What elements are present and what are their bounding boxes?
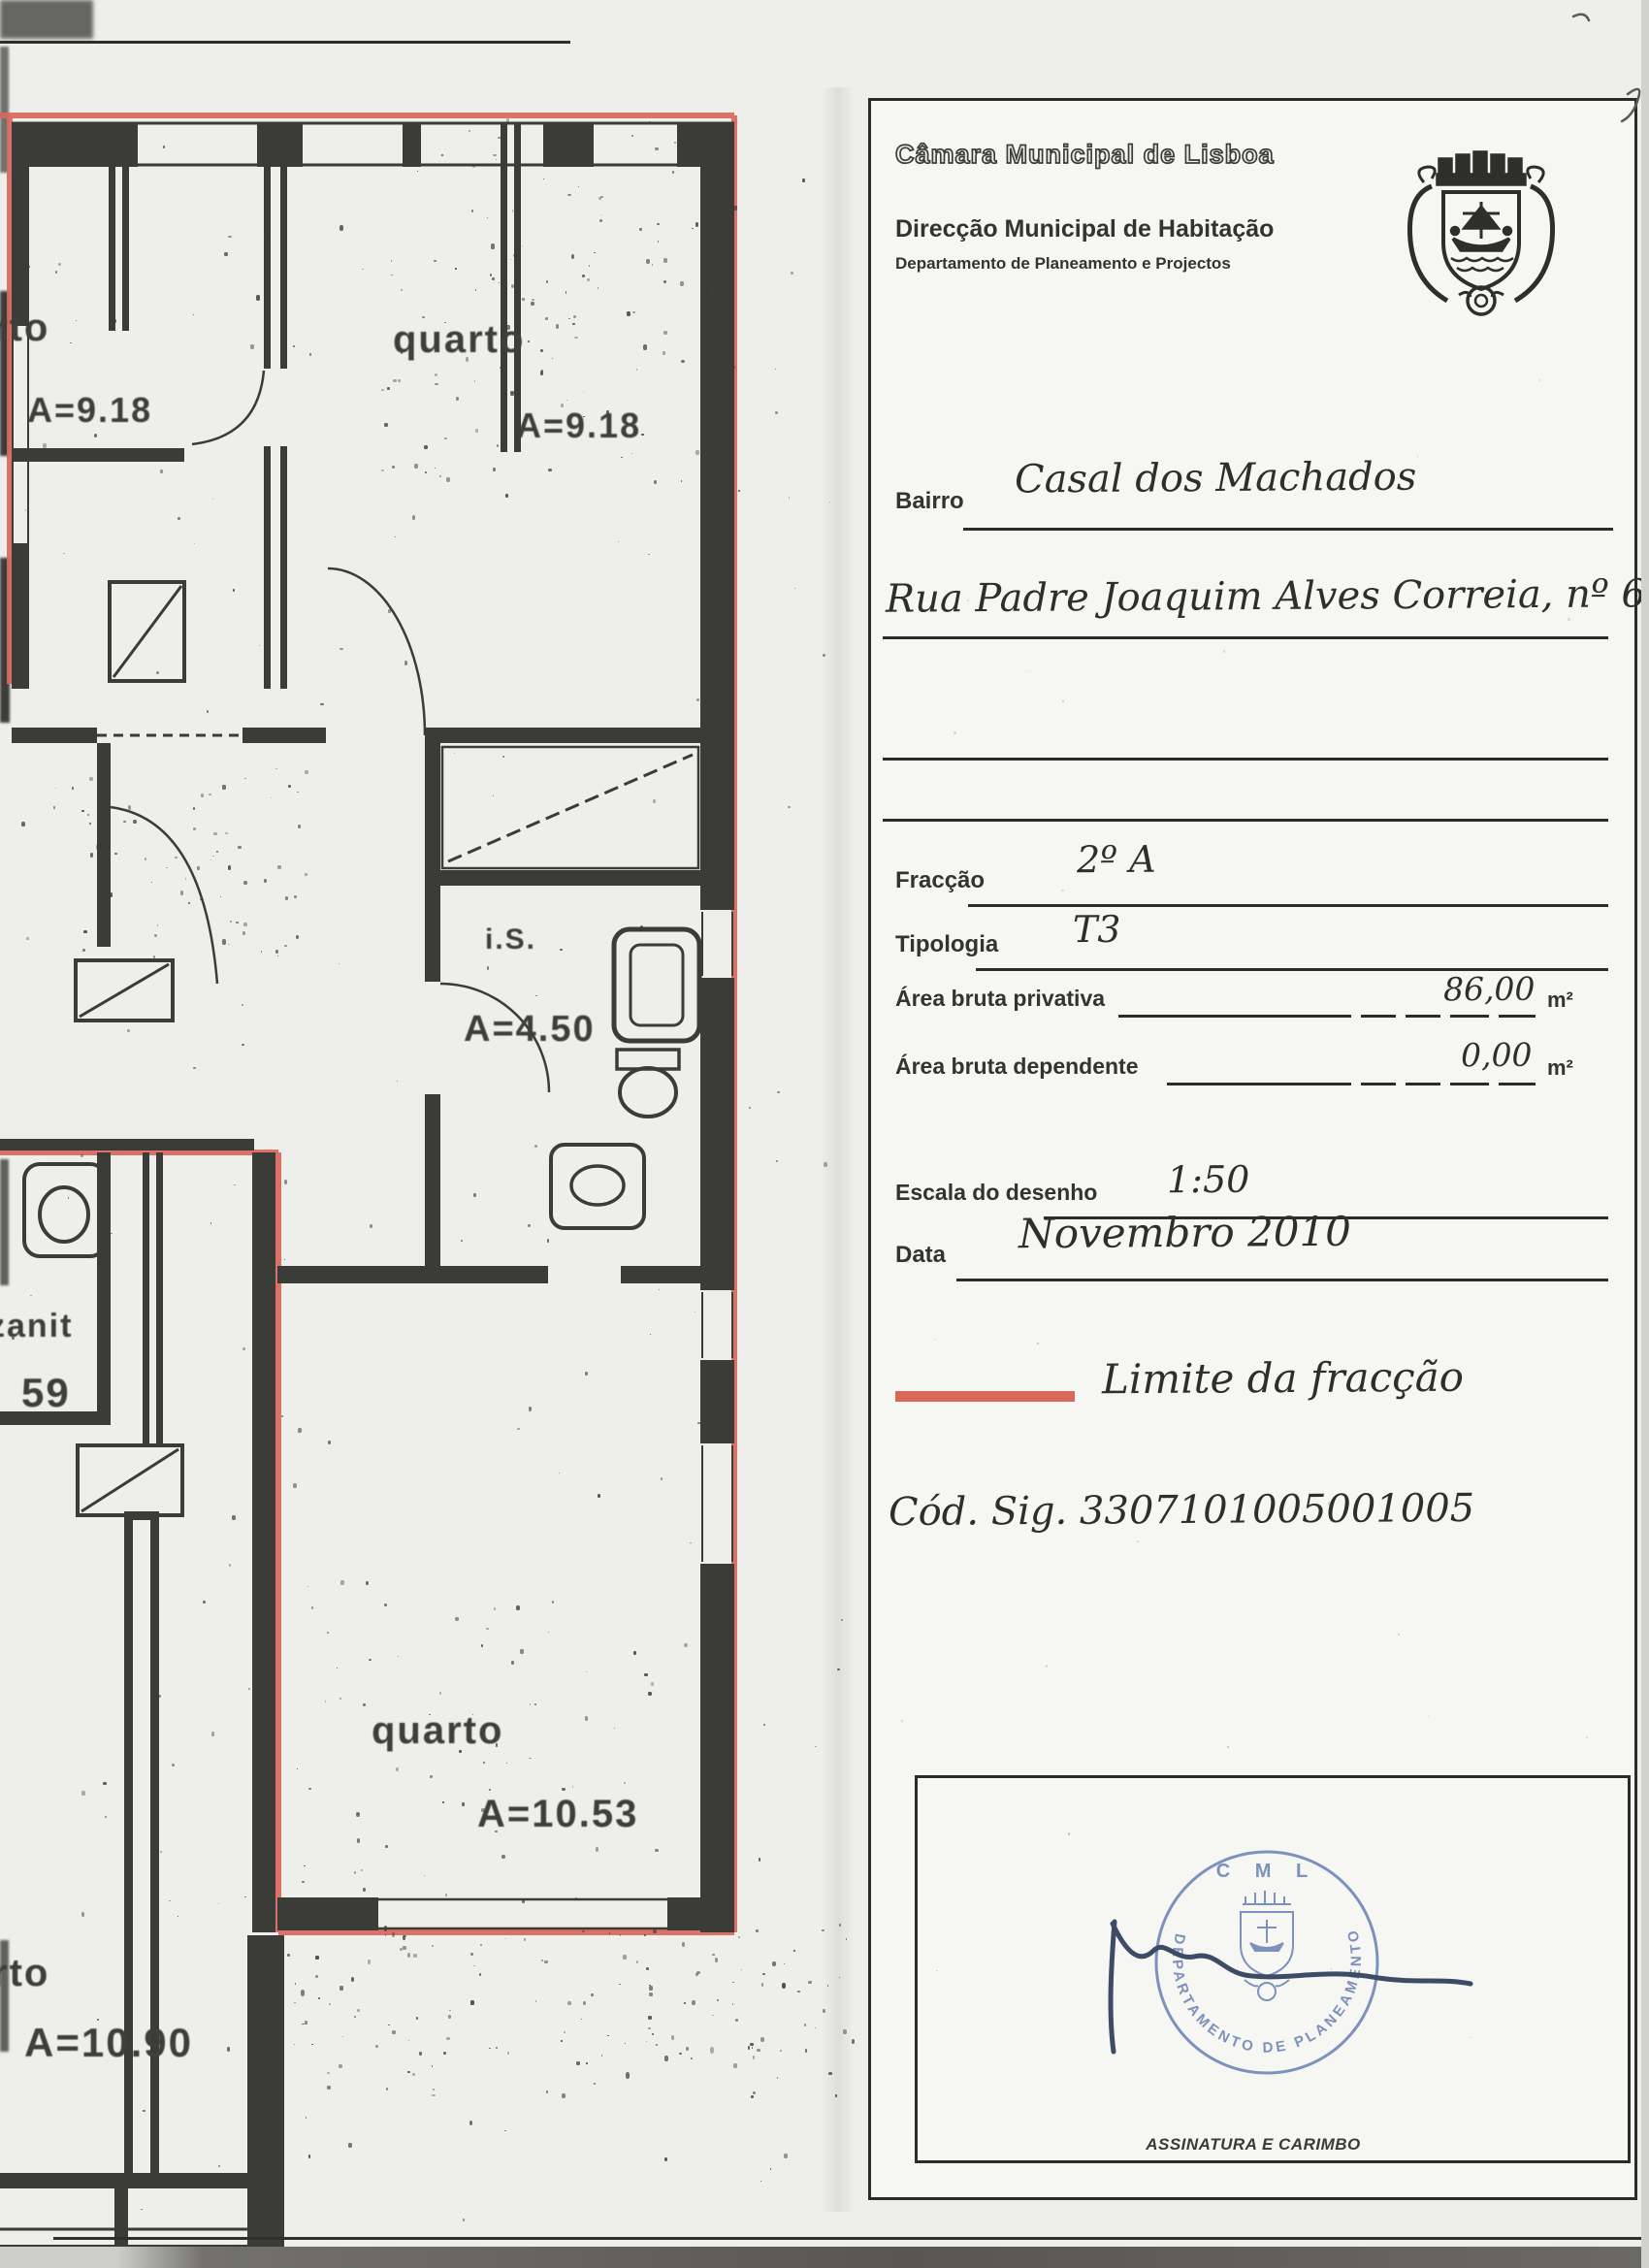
dash <box>1499 1015 1536 1018</box>
bairro-value: Casal dos Machados <box>1015 455 1417 502</box>
room-label-quarto-partial: rto <box>0 307 49 350</box>
room-area-918-right: A=9.18 <box>516 405 641 446</box>
rule-line <box>1167 1083 1351 1085</box>
room-area-partial-59: 59 <box>21 1370 71 1416</box>
area-privativa-label: Área bruta privativa <box>895 986 1105 1012</box>
room-area-1053: A=10.53 <box>477 1793 638 1836</box>
tipologia-label: Tipologia <box>895 931 998 958</box>
area-dependente-value: 0,00 <box>1461 1036 1533 1075</box>
room-label-quarto-bottom: quarto <box>372 1709 503 1753</box>
bidet <box>551 1145 644 1228</box>
division-title: Direcção Municipal de Habitação <box>895 215 1274 243</box>
cml-round-stamp: DEPARTAMENTO DE PLANEAMENTO E PROJECTOS … <box>1097 1807 1563 2118</box>
fixtures <box>24 582 699 1515</box>
rule-line <box>883 819 1608 822</box>
dash <box>1450 1083 1489 1085</box>
signature <box>1111 1922 1471 2052</box>
stamp-cml-text: C M L <box>1216 1861 1317 1882</box>
dash <box>1406 1015 1440 1018</box>
wardrobe <box>76 582 184 1515</box>
dash <box>1406 1083 1440 1085</box>
room-label-quarto-top: quarto <box>393 318 525 362</box>
dash <box>1361 1083 1396 1085</box>
fraccao-label: Fracção <box>895 867 985 894</box>
unit-m2: m² <box>1547 1055 1573 1081</box>
rule-line <box>883 758 1608 761</box>
municipality-title: Câmara Municipal de Lisboa <box>895 140 1275 170</box>
area-dependente-label: Área bruta dependente <box>895 1053 1139 1080</box>
scan-right-edge <box>1641 0 1649 2268</box>
dash <box>1450 1015 1489 1018</box>
scan-bottom-band <box>0 2247 1649 2268</box>
rule-line <box>883 636 1608 639</box>
stamp-crest <box>1241 1891 1293 2000</box>
address-value: Rua Padre Joaquim Alves Correia, nº 6 <box>886 571 1646 621</box>
rule-line <box>1118 1015 1351 1018</box>
rule-line <box>968 904 1608 907</box>
fraccao-value: 2º A <box>1077 838 1156 882</box>
rule-line <box>963 528 1613 531</box>
bairro-label: Bairro <box>895 488 964 515</box>
rule-line <box>956 1279 1608 1281</box>
legend-red-line <box>895 1391 1075 1402</box>
room-area-450: A=4.50 <box>464 1009 596 1051</box>
room-area-918-left: A=9.18 <box>27 390 152 431</box>
escala-label: Escala do desenho <box>895 1180 1097 1206</box>
scan-bottom-line <box>53 2237 1649 2240</box>
legend-label: Limite da fracção <box>1102 1353 1464 1404</box>
dash <box>1361 1015 1396 1018</box>
area-privativa-value: 86,00 <box>1443 970 1536 1009</box>
assinatura-label: ASSINATURA E CARIMBO <box>918 2135 1589 2155</box>
tipologia-value: T3 <box>1073 908 1121 951</box>
room-area-1090: A=10.90 <box>24 2020 193 2066</box>
cod-sig: Cód. Sig. 3307101005001005 <box>889 1486 1474 1535</box>
stamp-ring-text: DEPARTAMENTO DE PLANEAMENTO E PROJECTOS <box>1097 1807 1365 2057</box>
room-label-partial: zanit <box>0 1308 73 1345</box>
unit-m2: m² <box>1547 988 1573 1013</box>
escala-value: 1:50 <box>1167 1158 1250 1202</box>
lisbon-coat-of-arms <box>1395 122 1569 326</box>
title-block-panel: Câmara Municipal de Lisboa Direcção Muni… <box>868 98 1637 2200</box>
room-label-is: i.S. <box>485 923 536 956</box>
room-label-quarto-partial-bottom: rto <box>0 1952 49 1995</box>
fraction-boundary-red <box>0 115 734 1932</box>
scanned-floor-plan-document: rto A=9.18 quarto A=9.18 i.S. A=4.50 zan… <box>0 0 1649 2268</box>
pen-marks <box>1552 5 1649 150</box>
dash <box>1499 1083 1536 1085</box>
svg-text:DEPARTAMENTO DE PLANEAMENTO E: DEPARTAMENTO DE PLANEAMENTO E PROJECTOS <box>1097 1807 1365 2057</box>
data-value: Novembro 2010 <box>1018 1208 1351 1257</box>
signature-stamp-box: DEPARTAMENTO DE PLANEAMENTO E PROJECTOS … <box>915 1775 1631 2163</box>
data-label: Data <box>895 1242 946 1269</box>
department-title: Departamento de Planeamento e Projectos <box>895 254 1231 274</box>
